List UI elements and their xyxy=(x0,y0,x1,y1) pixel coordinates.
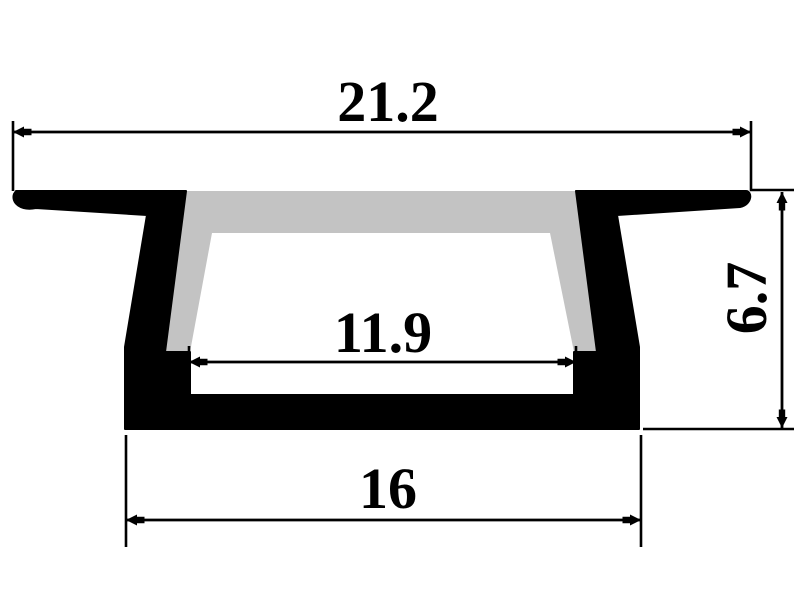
technical-drawing: 21.2 11.9 16 6.7 xyxy=(0,0,800,600)
base-width-label: 16 xyxy=(359,456,417,521)
overall-height-label: 6.7 xyxy=(714,262,779,335)
profile-cross-section-svg: 21.2 11.9 16 6.7 xyxy=(0,0,800,600)
opening-width-label: 11.9 xyxy=(334,300,432,365)
overall-width-label: 21.2 xyxy=(337,69,439,134)
